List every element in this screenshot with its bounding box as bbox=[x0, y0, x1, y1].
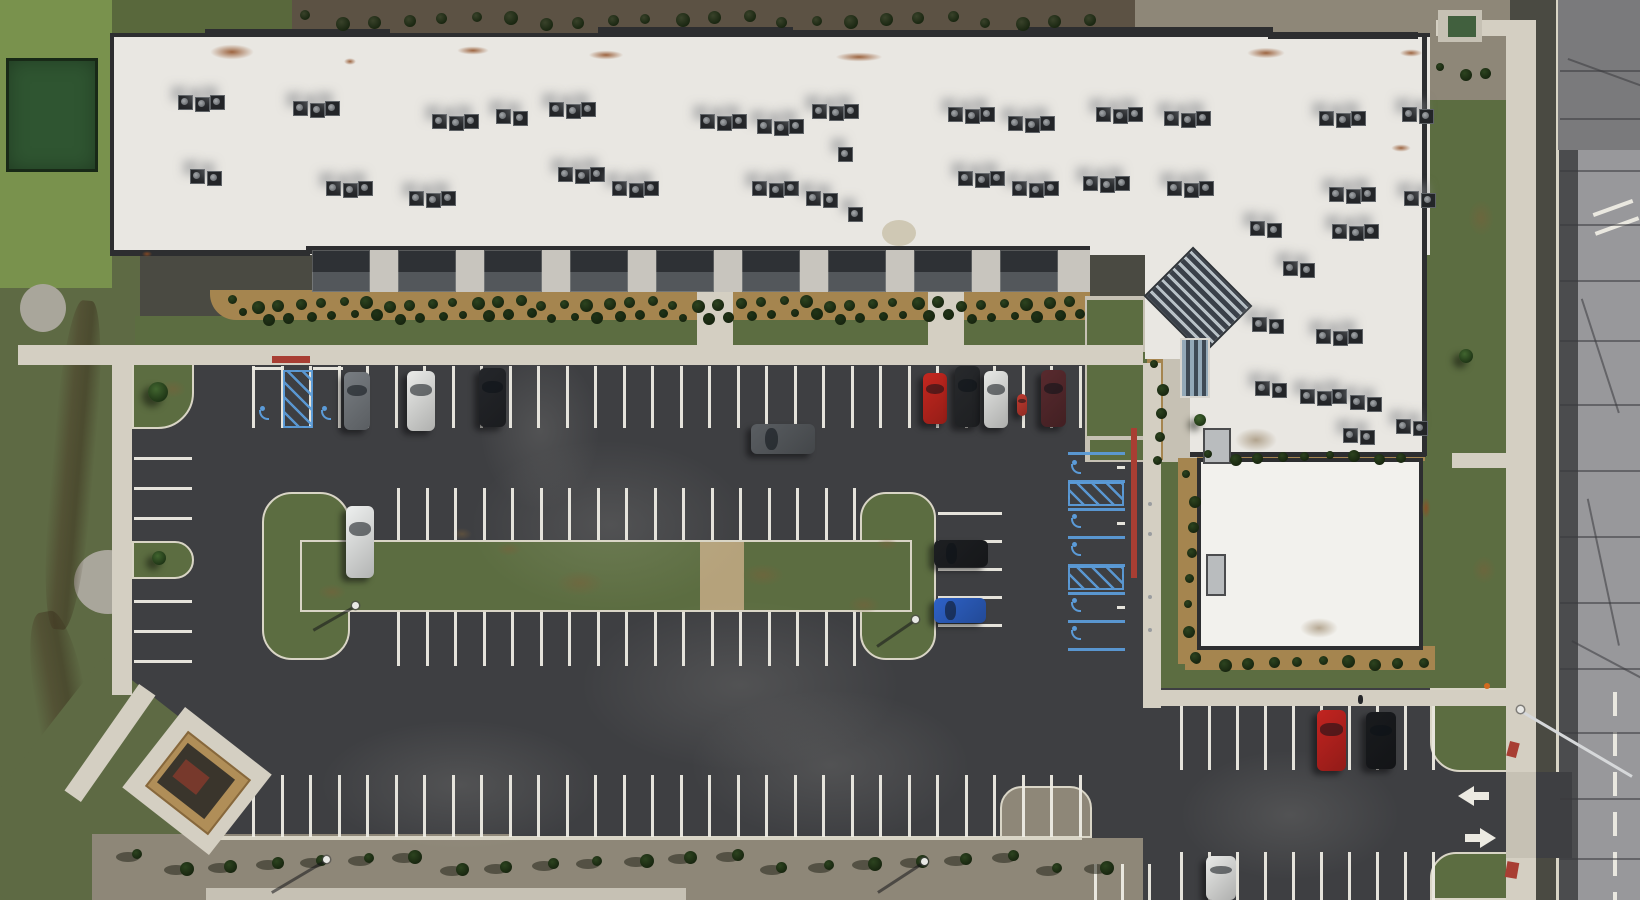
handicap-hatch-east-1 bbox=[1068, 482, 1124, 506]
roof-structure-1 bbox=[1203, 428, 1231, 464]
stalls-median-south bbox=[426, 612, 429, 666]
shrub bbox=[1188, 522, 1199, 533]
stalls-top-row bbox=[708, 366, 711, 428]
car-windshield bbox=[347, 385, 367, 397]
shrub bbox=[888, 298, 897, 307]
hvac-unit bbox=[948, 107, 963, 122]
utility-box bbox=[1448, 16, 1476, 37]
suv-black-median bbox=[934, 540, 988, 567]
shrub bbox=[1156, 408, 1167, 419]
car-windshield bbox=[765, 428, 778, 451]
arrow-head bbox=[1480, 828, 1496, 848]
shrub bbox=[1319, 656, 1328, 665]
shrub bbox=[1020, 298, 1033, 311]
shrub bbox=[1292, 657, 1302, 667]
hvac-unit bbox=[195, 97, 210, 112]
shrub bbox=[591, 312, 603, 324]
hvac-unit bbox=[844, 104, 859, 119]
stalls-median-north bbox=[853, 488, 856, 540]
walkway-light bbox=[1148, 502, 1152, 506]
shrub bbox=[1300, 452, 1309, 461]
hvac-unit bbox=[958, 171, 973, 186]
stalls-bottom-mini bbox=[1121, 864, 1124, 900]
road-crack bbox=[1560, 170, 1640, 172]
hvac-unit bbox=[1404, 191, 1419, 206]
stalls-bottom-row bbox=[452, 775, 455, 837]
shrub bbox=[780, 296, 789, 305]
car-windshield bbox=[410, 384, 431, 396]
hvac-unit bbox=[1319, 111, 1334, 126]
crosswalk-driveway bbox=[1506, 772, 1536, 858]
stalls-bottom-row bbox=[965, 775, 968, 837]
hvac-cluster bbox=[190, 169, 222, 187]
hvac-unit bbox=[752, 181, 767, 196]
hvac-unit bbox=[1040, 116, 1055, 131]
stalls-bottom-row bbox=[309, 775, 312, 837]
shrub bbox=[580, 299, 593, 312]
shrub bbox=[483, 310, 495, 322]
roof-debris-pile bbox=[882, 220, 916, 246]
shrub bbox=[360, 296, 373, 309]
stalls-top-row bbox=[594, 366, 597, 428]
stalls-bottom-row bbox=[822, 775, 825, 837]
walkway-light bbox=[1148, 595, 1152, 599]
car-windshield bbox=[482, 381, 503, 393]
shrub bbox=[703, 313, 715, 325]
shrub bbox=[224, 860, 237, 873]
hvac-unit bbox=[1044, 181, 1059, 196]
shrub bbox=[615, 311, 626, 322]
grass-dirt-patch bbox=[496, 542, 522, 556]
shrub bbox=[980, 18, 990, 28]
suv-maroon bbox=[1041, 370, 1066, 427]
stalls-bottom-row bbox=[765, 775, 768, 837]
stalls-bottom-right-2 bbox=[1404, 852, 1407, 900]
shrub bbox=[415, 313, 425, 323]
hvac-unit bbox=[1329, 187, 1344, 202]
stall-front-line bbox=[252, 367, 282, 370]
hvac-unit bbox=[409, 191, 424, 206]
stalls-bottom-row bbox=[1022, 775, 1025, 837]
shrub bbox=[456, 863, 469, 876]
hvac-unit bbox=[1029, 183, 1044, 198]
stalls-top-row bbox=[509, 366, 512, 428]
hvac-cluster bbox=[806, 191, 838, 209]
car-windshield bbox=[958, 379, 977, 391]
hvac-unit bbox=[612, 181, 627, 196]
stalls-bottom-row bbox=[1050, 775, 1053, 837]
hvac-unit bbox=[784, 181, 799, 196]
stalls-median-south bbox=[540, 612, 543, 666]
shrub bbox=[1230, 454, 1242, 466]
stalls-east-facing bbox=[938, 568, 1002, 571]
hvac-cluster bbox=[409, 191, 457, 209]
shrub bbox=[812, 16, 822, 26]
shrub bbox=[252, 301, 265, 314]
hvac-unit bbox=[965, 109, 980, 124]
hvac-unit bbox=[549, 102, 564, 117]
island-driveway-bottom bbox=[1430, 852, 1510, 900]
hvac-cluster bbox=[1008, 116, 1056, 134]
shrub bbox=[472, 297, 485, 310]
hvac-cluster bbox=[432, 114, 480, 132]
stalls-top-row bbox=[908, 366, 911, 428]
stalls-top-row bbox=[537, 366, 540, 428]
hvac-cluster bbox=[293, 101, 341, 119]
hvac-cluster bbox=[496, 109, 528, 127]
stalls-bottom-row bbox=[537, 775, 540, 837]
shrub bbox=[1374, 454, 1385, 465]
shrub bbox=[516, 295, 527, 306]
shrub bbox=[923, 310, 935, 322]
hvac-cluster bbox=[326, 181, 374, 199]
handicap-hatch-top-row bbox=[283, 370, 313, 428]
stalls-median-north bbox=[483, 488, 486, 540]
walkway-light bbox=[1148, 628, 1152, 632]
parapet-step-4 bbox=[1018, 27, 1273, 34]
sidewalk-roadside bbox=[1506, 20, 1536, 900]
wheelchair-symbol-marking bbox=[1071, 542, 1081, 555]
hvac-unit bbox=[1317, 391, 1332, 406]
shrub bbox=[824, 301, 836, 313]
shrub bbox=[263, 314, 275, 326]
stalls-bottom-mini bbox=[1148, 864, 1151, 900]
hvac-unit bbox=[207, 171, 222, 186]
patio-unit bbox=[1000, 250, 1058, 292]
car-windshield bbox=[926, 384, 944, 394]
hvac-unit bbox=[1181, 113, 1196, 128]
hvac-unit bbox=[700, 114, 715, 129]
car-windshield bbox=[987, 384, 1005, 395]
stalls-bottom-row bbox=[1079, 775, 1082, 837]
grass-dirt-patch bbox=[1235, 428, 1277, 452]
stair-skylight bbox=[1180, 338, 1210, 398]
hvac-cluster bbox=[1167, 181, 1215, 199]
hvac-unit bbox=[1255, 381, 1270, 396]
shrub bbox=[956, 301, 967, 312]
suv-black-2 bbox=[1366, 712, 1396, 769]
shrub bbox=[692, 300, 705, 313]
hvac-cluster bbox=[1319, 111, 1367, 129]
stalls-median-south bbox=[568, 612, 571, 666]
hvac-unit bbox=[358, 181, 373, 196]
stalls-handicap-column bbox=[1068, 536, 1125, 539]
hvac-cluster bbox=[848, 207, 864, 225]
wheelchair-symbol-marking bbox=[259, 406, 269, 419]
shrub bbox=[679, 314, 687, 322]
hvac-cluster bbox=[1255, 381, 1287, 399]
roof-rust-stain bbox=[452, 45, 494, 56]
hvac-unit bbox=[774, 121, 789, 136]
shrub bbox=[364, 853, 374, 863]
stalls-bottom-right-1 bbox=[1432, 706, 1435, 770]
gravel-pile-1 bbox=[20, 284, 66, 332]
hvac-unit bbox=[1025, 118, 1040, 133]
stalls-median-north bbox=[597, 488, 600, 540]
shrub bbox=[712, 299, 724, 311]
hvac-cluster bbox=[612, 181, 660, 199]
car-windshield bbox=[1044, 383, 1063, 394]
sedan-gray bbox=[344, 372, 370, 430]
stalls-bottom-row bbox=[851, 775, 854, 837]
shrub bbox=[371, 309, 383, 321]
shrub bbox=[811, 308, 823, 320]
stalls-top-row bbox=[452, 366, 455, 428]
hvac-cluster bbox=[1164, 111, 1212, 129]
stalls-median-north bbox=[454, 488, 457, 540]
shrub bbox=[987, 313, 996, 322]
shrub bbox=[736, 298, 747, 309]
roof-rust-stain bbox=[1241, 46, 1291, 60]
pedestrian bbox=[1358, 695, 1363, 704]
shrub bbox=[791, 309, 799, 317]
shrub bbox=[640, 14, 650, 24]
hvac-cluster bbox=[1402, 107, 1434, 125]
hvac-unit bbox=[806, 191, 821, 206]
stalls-median-north bbox=[711, 488, 714, 540]
hvac-cluster bbox=[1096, 107, 1144, 125]
hvac-unit bbox=[629, 183, 644, 198]
hvac-cluster bbox=[549, 102, 597, 120]
roof-structure-2 bbox=[1206, 554, 1226, 596]
hvac-unit bbox=[838, 147, 853, 162]
road-crack bbox=[1560, 340, 1640, 342]
stall-front-line bbox=[1117, 606, 1125, 609]
parapet-step-5 bbox=[1268, 32, 1418, 39]
shrub bbox=[948, 11, 959, 22]
hvac-unit bbox=[1012, 181, 1027, 196]
patio-unit bbox=[312, 250, 370, 292]
road-crack bbox=[1560, 118, 1640, 120]
shrub bbox=[459, 311, 467, 319]
shrub bbox=[572, 17, 584, 29]
hvac-unit bbox=[1272, 383, 1287, 398]
hvac-unit bbox=[1250, 221, 1265, 236]
hvac-cluster bbox=[838, 147, 854, 165]
stalls-bottom-row bbox=[708, 775, 711, 837]
shrub bbox=[624, 297, 635, 308]
shrub bbox=[800, 295, 813, 308]
shrub bbox=[180, 862, 194, 876]
road-lane-dash bbox=[1613, 852, 1617, 876]
stalls-bottom-right-1 bbox=[1292, 706, 1295, 770]
shrub bbox=[592, 856, 602, 866]
truck-red bbox=[1317, 710, 1346, 771]
hvac-cluster bbox=[1250, 221, 1282, 239]
road-lane-dash bbox=[1613, 772, 1617, 796]
shrub bbox=[1183, 626, 1195, 638]
road-crack bbox=[1560, 280, 1640, 282]
shrub bbox=[272, 300, 284, 312]
hvac-unit bbox=[1349, 226, 1364, 241]
hvac-cluster bbox=[958, 171, 1006, 189]
red-curb-top-row bbox=[272, 356, 310, 363]
patio-unit bbox=[742, 250, 800, 292]
shrub bbox=[1190, 652, 1201, 663]
stalls-west-edge bbox=[134, 457, 192, 460]
road-lane-dash bbox=[1613, 692, 1617, 716]
car-windshield bbox=[1370, 725, 1393, 736]
shrub bbox=[976, 300, 986, 310]
stalls-bottom-row bbox=[366, 775, 369, 837]
turf-pad bbox=[6, 58, 98, 172]
hvac-unit bbox=[325, 101, 340, 116]
stalls-median-north bbox=[625, 488, 628, 540]
sidewalk-left bbox=[112, 345, 132, 695]
stalls-median-south bbox=[853, 612, 856, 666]
stalls-bottom-right-2 bbox=[1348, 852, 1351, 900]
shrub bbox=[1044, 297, 1056, 309]
aerial-scene bbox=[0, 0, 1640, 900]
stalls-bottom-row bbox=[908, 775, 911, 837]
hvac-cluster bbox=[1300, 389, 1348, 407]
hvac-unit bbox=[1332, 224, 1347, 239]
shrub bbox=[316, 298, 326, 308]
walkway-light bbox=[1148, 532, 1152, 536]
stalls-median-south bbox=[796, 612, 799, 666]
patio-unit bbox=[656, 250, 714, 292]
shrub bbox=[395, 314, 406, 325]
shrub bbox=[1084, 14, 1096, 26]
lower-block-edge-bottom bbox=[1197, 646, 1423, 650]
road-crack bbox=[1560, 536, 1640, 538]
patio-unit bbox=[398, 250, 456, 292]
shrub bbox=[540, 18, 553, 31]
hvac-unit bbox=[717, 116, 732, 131]
stalls-top-row bbox=[851, 366, 854, 428]
stalls-bottom-row bbox=[423, 775, 426, 837]
hvac-unit bbox=[1413, 421, 1428, 436]
shrub bbox=[967, 314, 977, 324]
shrub bbox=[1219, 659, 1232, 672]
hvac-unit bbox=[178, 95, 193, 110]
hvac-unit bbox=[1113, 109, 1128, 124]
stalls-median-south bbox=[682, 612, 685, 666]
patio-unit bbox=[914, 250, 972, 292]
stalls-east-facing bbox=[938, 512, 1002, 515]
shrub bbox=[868, 299, 878, 309]
hvac-unit bbox=[757, 119, 772, 134]
shrub bbox=[756, 297, 766, 307]
shrub bbox=[912, 297, 925, 310]
shrub bbox=[283, 313, 294, 324]
car-white-bottom bbox=[1206, 856, 1236, 900]
arrow-tail bbox=[1472, 792, 1489, 800]
shrub bbox=[1369, 659, 1381, 671]
shrub bbox=[500, 861, 512, 873]
hvac-cluster bbox=[1316, 329, 1364, 347]
stalls-top-row bbox=[338, 366, 341, 428]
hvac-cluster bbox=[1404, 191, 1436, 209]
shrub bbox=[296, 299, 307, 310]
stalls-bottom-right-1 bbox=[1264, 706, 1267, 770]
stalls-bottom-row bbox=[737, 775, 740, 837]
stalls-bottom-right-1 bbox=[1348, 706, 1351, 770]
lane-arrow-left bbox=[1458, 786, 1494, 806]
hvac-unit bbox=[769, 183, 784, 198]
sidewalk-mid-connector bbox=[1452, 453, 1508, 468]
hvac-cluster bbox=[558, 167, 606, 185]
hvac-unit bbox=[1283, 261, 1298, 276]
shrub bbox=[1052, 863, 1062, 873]
hvac-cluster bbox=[752, 181, 800, 199]
hvac-unit bbox=[1300, 263, 1315, 278]
hvac-unit bbox=[732, 114, 747, 129]
road-crack bbox=[1560, 404, 1640, 406]
shrub bbox=[659, 309, 668, 318]
roof-wing-main bbox=[110, 33, 1430, 255]
shrub bbox=[723, 312, 734, 323]
hvac-unit bbox=[558, 167, 573, 182]
stalls-bottom-row bbox=[509, 775, 512, 837]
stalls-bottom-right-1 bbox=[1180, 706, 1183, 770]
parapet-step-3 bbox=[790, 30, 1025, 37]
grass-dirt-patch bbox=[742, 564, 784, 586]
hvac-unit bbox=[1184, 183, 1199, 198]
hvac-unit bbox=[848, 207, 863, 222]
stalls-median-south bbox=[711, 612, 714, 666]
shrub bbox=[844, 300, 855, 311]
shrub bbox=[132, 849, 142, 859]
roof-rust-stain bbox=[140, 250, 154, 258]
shrub bbox=[767, 310, 776, 319]
stalls-median-north bbox=[825, 488, 828, 540]
stalls-bottom-row bbox=[651, 775, 654, 837]
roof-rust-stain bbox=[203, 42, 261, 62]
stalls-median-south bbox=[511, 612, 514, 666]
hvac-unit bbox=[1316, 329, 1331, 344]
shrub bbox=[1155, 432, 1165, 442]
shrub bbox=[960, 853, 972, 865]
parapet-right bbox=[1422, 33, 1427, 456]
stalls-bottom-row bbox=[480, 775, 483, 837]
stalls-median-north bbox=[654, 488, 657, 540]
shrub bbox=[844, 15, 858, 29]
car-windshield bbox=[945, 601, 955, 620]
grass-dirt-patch bbox=[1300, 618, 1338, 638]
stalls-bottom-right-2 bbox=[1292, 852, 1295, 900]
hvac-unit bbox=[1350, 395, 1365, 410]
sedan-white-2 bbox=[984, 371, 1008, 428]
stalls-west-edge bbox=[134, 600, 192, 603]
shrub bbox=[536, 301, 546, 311]
road-crack bbox=[1560, 798, 1640, 800]
hvac-unit bbox=[1083, 176, 1098, 191]
pickup-gray-aisle bbox=[751, 424, 815, 454]
stalls-top-row bbox=[623, 366, 626, 428]
hvac-unit bbox=[1128, 107, 1143, 122]
sedan-white-1 bbox=[407, 371, 435, 431]
stalls-median-north bbox=[397, 488, 400, 540]
hvac-unit bbox=[823, 193, 838, 208]
shrub bbox=[384, 301, 396, 313]
traffic-cone bbox=[1484, 683, 1490, 689]
stalls-bottom-right-1 bbox=[1404, 706, 1407, 770]
hvac-cluster bbox=[1343, 428, 1375, 446]
shrub bbox=[747, 311, 757, 321]
hvac-unit bbox=[1396, 419, 1411, 434]
shrub bbox=[835, 314, 846, 325]
shrub bbox=[899, 311, 907, 319]
road-lane-dash bbox=[1613, 812, 1617, 836]
stalls-bottom-row bbox=[338, 775, 341, 837]
shrub bbox=[1187, 548, 1197, 558]
stalls-median-south bbox=[597, 612, 600, 666]
stalls-handicap-column bbox=[1068, 620, 1125, 623]
lane-arrow-right bbox=[1460, 828, 1496, 848]
stalls-median-south bbox=[654, 612, 657, 666]
hvac-unit bbox=[1367, 397, 1382, 412]
